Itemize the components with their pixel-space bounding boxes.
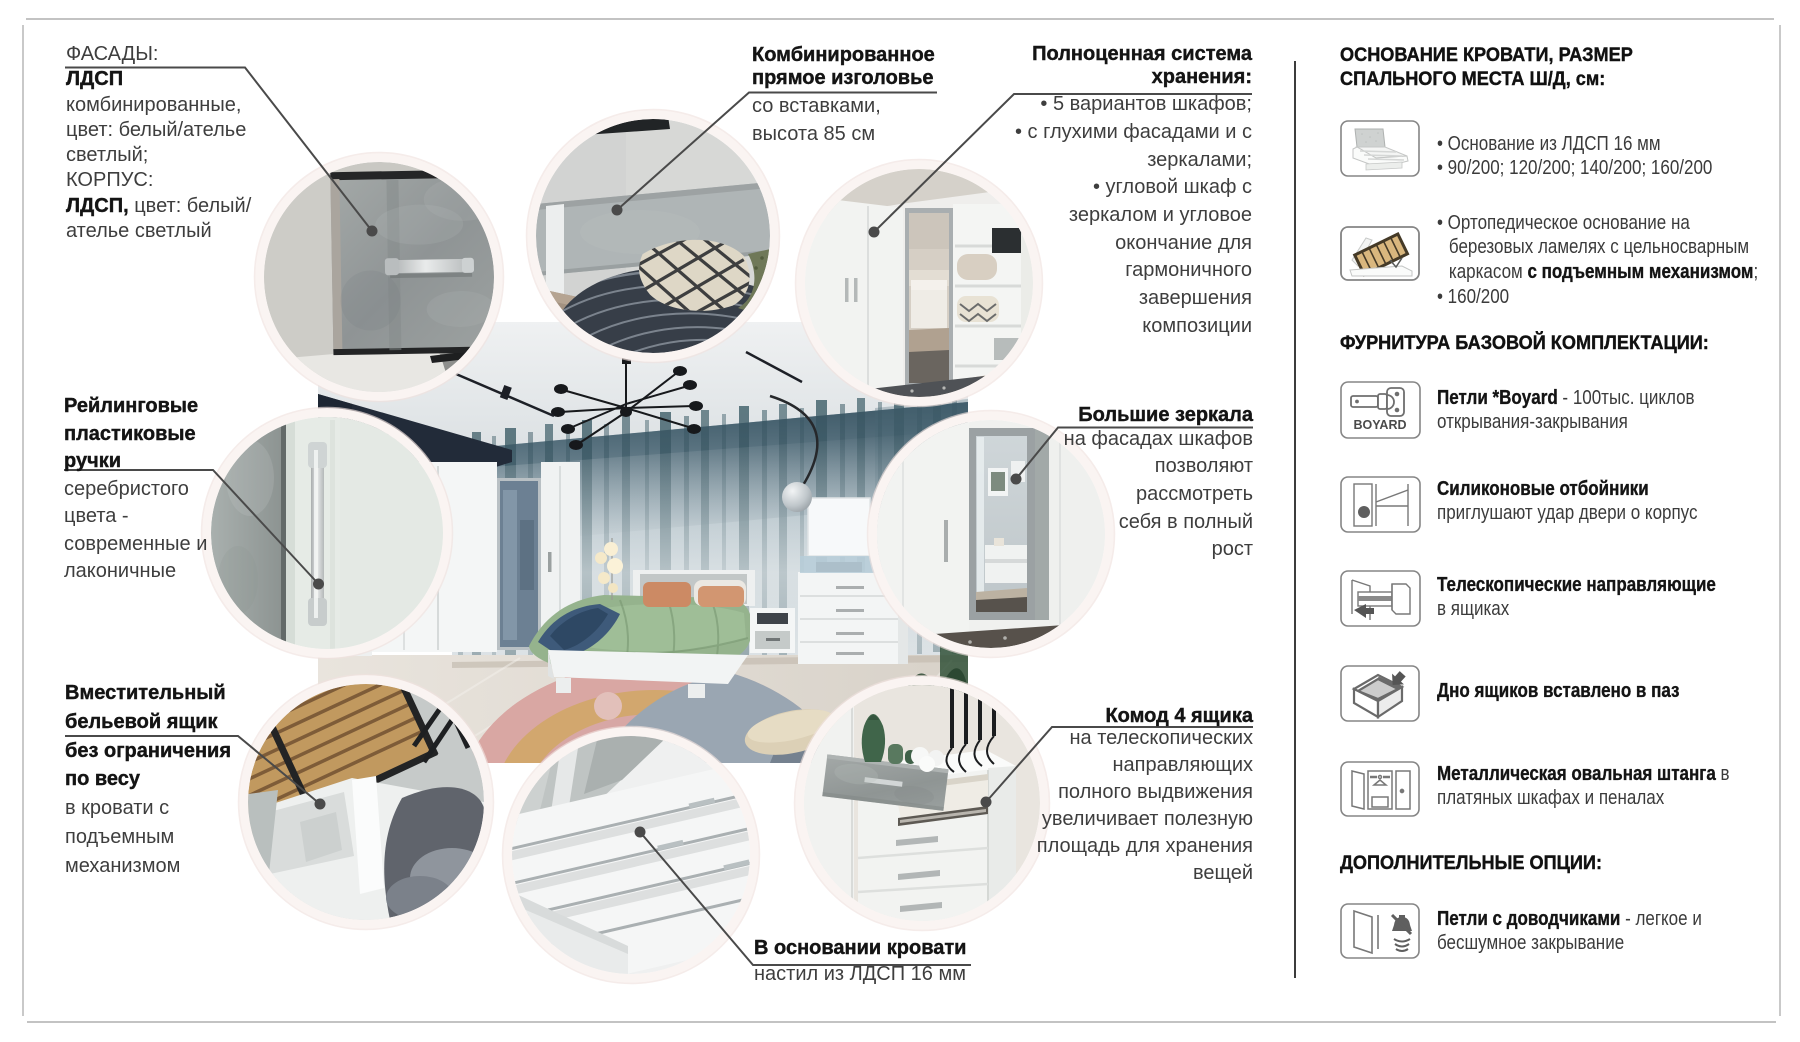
svg-text:BOYARD: BOYARD xyxy=(1353,418,1406,432)
